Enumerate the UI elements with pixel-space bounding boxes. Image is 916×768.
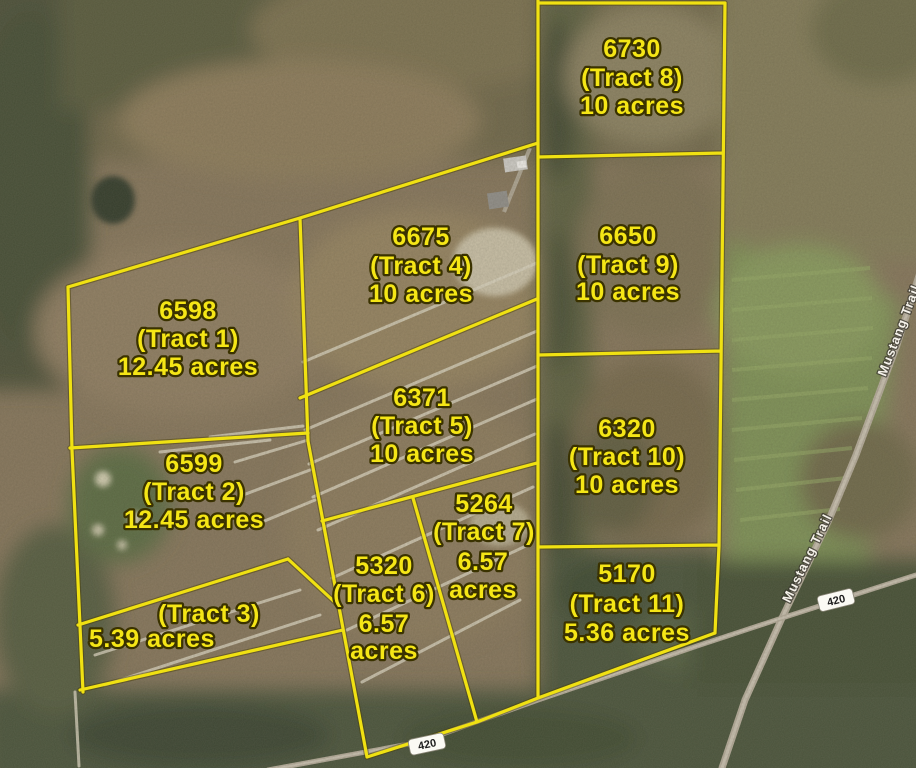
tract-9-number: 6650 [599,222,657,250]
tract-4-number: 6675 [392,223,450,251]
tract-10-acreage: 10 acres [575,471,679,499]
tract-2-name: (Tract 2) [143,478,245,506]
tract-5-acreage: 10 acres [370,440,474,468]
tract-2-number: 6599 [165,450,223,478]
tract-5-name: (Tract 5) [371,412,473,440]
tract-3-name: (Tract 3) [158,600,260,628]
tract-9-name: (Tract 9) [577,251,679,279]
tract-5-number: 6371 [393,384,451,412]
tract-6-name: (Tract 6) [333,580,435,608]
tract-7-acreage-unit: acres [449,576,517,604]
tract-9-acreage: 10 acres [576,278,680,306]
tract-8-name: (Tract 8) [581,64,683,92]
tract-11-acreage: 5.36 acres [564,619,690,647]
tract-7-acreage-value: 6.57 [458,548,509,576]
tract-10-name: (Tract 10) [569,443,685,471]
tract-6-acreage-unit: acres [350,637,418,665]
aerial-parcel-map: Mustang Trail Mustang Trail 420 420 6730… [0,0,916,768]
tract-1-number: 6598 [159,297,217,325]
tract-10-number: 6320 [598,415,656,443]
parcel-map-screenshot: Mustang Trail Mustang Trail 420 420 6730… [0,0,916,768]
tract-4-acreage: 10 acres [369,280,473,308]
tract-3-acreage: 5.39 acres [89,625,215,653]
tract-4-name: (Tract 4) [370,252,472,280]
tract-8-number: 6730 [603,35,661,63]
tract-8-acreage: 10 acres [580,92,684,120]
tract-7-name: (Tract 7) [433,518,535,546]
tract-11-name: (Tract 11) [570,590,685,618]
tract-1-acreage: 12.45 acres [118,353,258,381]
tract-2-acreage: 12.45 acres [124,506,264,534]
tract-6-acreage-value: 6.57 [359,610,410,638]
tract-7-number: 5264 [455,490,513,518]
tract-6-number: 5320 [355,552,413,580]
tract-11-number: 5170 [598,560,656,588]
tract-1-name: (Tract 1) [137,325,239,353]
